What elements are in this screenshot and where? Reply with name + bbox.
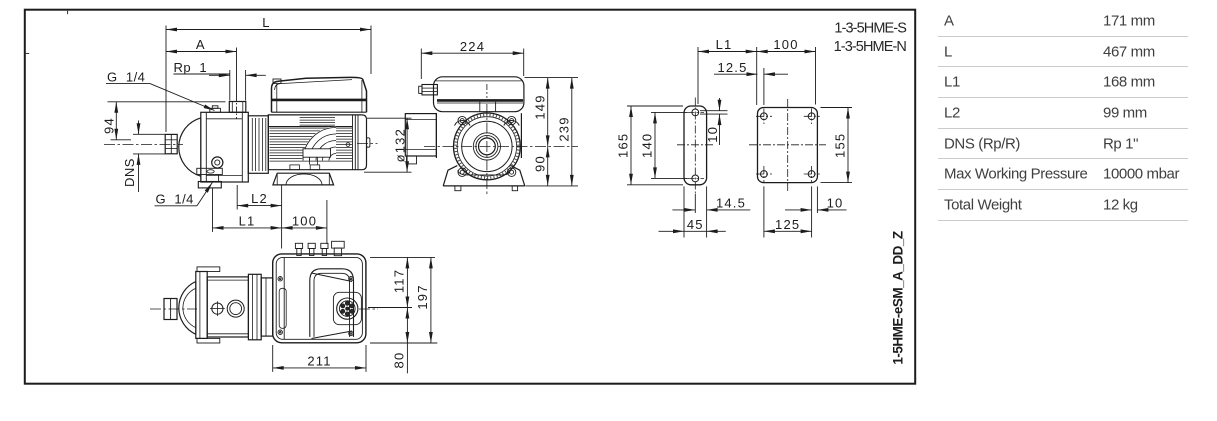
svg-text:100: 100 xyxy=(292,213,317,228)
svg-text:L2: L2 xyxy=(251,191,268,206)
svg-text:G 1/4: G 1/4 xyxy=(156,192,194,207)
svg-text:1-3-5HME-S: 1-3-5HME-S xyxy=(834,21,906,37)
svg-text:G 1/4: G 1/4 xyxy=(107,70,145,85)
svg-text:14.5: 14.5 xyxy=(716,195,746,210)
svg-text:100: 100 xyxy=(773,37,798,52)
svg-text:45: 45 xyxy=(687,217,704,232)
svg-text:L: L xyxy=(262,15,270,30)
svg-text:DNS: DNS xyxy=(122,158,137,187)
svg-text:90: 90 xyxy=(532,155,547,172)
svg-text:165: 165 xyxy=(615,133,630,158)
svg-text:149: 149 xyxy=(532,94,547,119)
svg-text:L1: L1 xyxy=(239,213,256,228)
svg-text:224: 224 xyxy=(460,39,485,54)
svg-text:211: 211 xyxy=(307,354,331,369)
svg-text:94: 94 xyxy=(102,117,117,134)
svg-text:1-5HME-eSM_A_DD_Z: 1-5HME-eSM_A_DD_Z xyxy=(891,231,906,365)
svg-text:A: A xyxy=(196,37,206,52)
svg-text:140: 140 xyxy=(639,133,654,158)
svg-text:125: 125 xyxy=(775,217,800,232)
svg-text:197: 197 xyxy=(415,284,430,309)
svg-text:117: 117 xyxy=(392,269,407,293)
svg-text:155: 155 xyxy=(832,133,847,158)
svg-text:239: 239 xyxy=(556,116,571,141)
svg-text:L1: L1 xyxy=(716,37,733,52)
svg-text:12.5: 12.5 xyxy=(717,60,747,75)
svg-text:1-3-5HME-N: 1-3-5HME-N xyxy=(834,39,907,55)
svg-text:10: 10 xyxy=(827,195,844,210)
svg-text:10: 10 xyxy=(705,126,720,143)
svg-text:Rp 1: Rp 1 xyxy=(174,60,208,75)
svg-text:80: 80 xyxy=(392,352,407,369)
